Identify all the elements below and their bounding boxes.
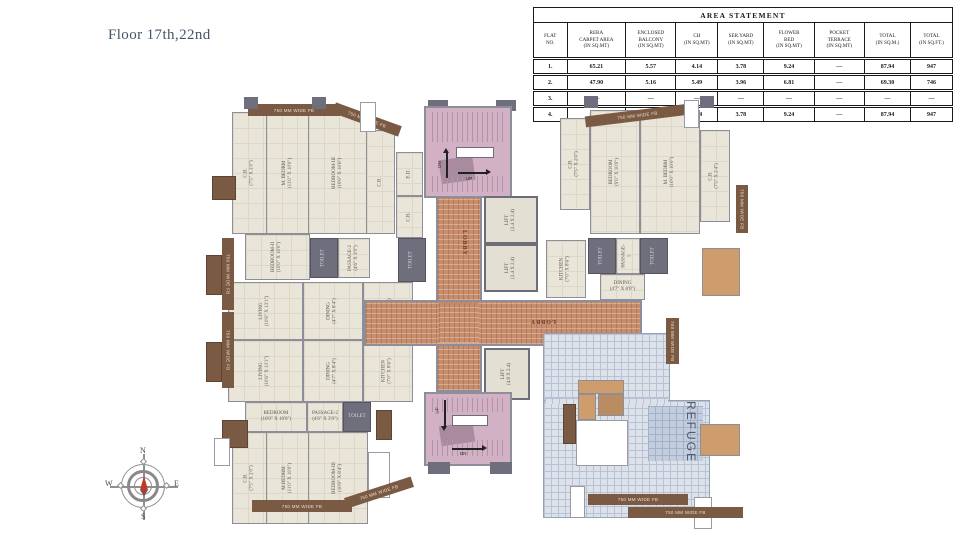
room-toilet: TOILET [398, 238, 426, 282]
room-bedroom-2: BEDROOM-II (10'0" X 10'0") [245, 234, 310, 280]
table-row: 1. 65.21 5.57 4.14 3.78 9.24 — 87.94 947 [534, 59, 953, 75]
room-living: LIVING (10'6" X 13'1") [228, 340, 303, 402]
col-total-sqft: TOTAL (IN SQ.FT.) [911, 23, 953, 59]
kitchen-counter-block [598, 394, 624, 416]
lobby-label-vertical: LOBBY [461, 230, 467, 256]
room-passage: PASSAGE-2 (4'6" X 3'9") [307, 402, 343, 432]
compass-needle-north [140, 476, 148, 490]
stair-up-label: UP [466, 176, 472, 181]
room-lift: LIFT (2.4 X 2.4) [484, 196, 538, 244]
lobby-junction [439, 303, 479, 343]
room-bedroom: BEDROOM (10'0" X 10'0") [245, 402, 307, 432]
stair-arrow-head [443, 148, 449, 153]
compass-label-n: N [140, 446, 146, 455]
room-toilet: TOILET [640, 238, 668, 274]
room-kitchen: KITCHEN (7'0" X 8'6") [363, 340, 413, 402]
column-tab [244, 97, 258, 109]
balcony-box [214, 438, 230, 466]
balcony-box [360, 102, 376, 132]
table-row: 2. 47.90 5.16 5.49 3.96 6.81 — 69.30 746 [534, 75, 953, 91]
stair-arrow-head [441, 426, 447, 431]
compass: N E S W [108, 450, 180, 524]
lobby-spine [436, 196, 482, 392]
flower-bed-band: 750 MM WIDE FB [248, 104, 340, 116]
flower-bed-block [206, 255, 222, 295]
room-living: LIVING (10'6" X 13'1") [228, 282, 303, 340]
room-cb: C.B. [366, 130, 395, 234]
room-dining: DINING (4'7" X 8'0") [600, 274, 645, 300]
stair-arrow [444, 400, 446, 426]
stair-arrow [446, 152, 448, 178]
flower-bed-band: 750 MM WIDE FB [222, 238, 234, 310]
flower-bed-band: 750 MM WIDE FB [666, 318, 679, 364]
flower-bed-band: 750 MM WIDE FB [628, 507, 743, 518]
room-cb: C.B. (7'5" X 2'0") [232, 112, 268, 234]
stair-arrow-head [482, 445, 487, 451]
col-ch: CH (IN SQ.MT) [676, 23, 718, 59]
room-master-bedroom: M. BEDRM (11'0" X 10'0") [266, 112, 310, 234]
floor-plan-sheet: Floor 17th,22nd AREA STATEMENT FLAT NO. … [0, 0, 957, 533]
room-kitchen: KITCHEN (7'0" X 8'6") [546, 240, 586, 298]
flower-bed-band: 750 MM WIDE FB [588, 494, 688, 505]
stair-arrow [458, 172, 486, 174]
compass-label-e: E [174, 479, 179, 488]
col-ser-yard: SER.YARD (IN SQ.MT) [718, 23, 764, 59]
room-bedroom-3: BEDROOM-III (10'0" X 10'6") [308, 112, 368, 234]
room-lift: LIFT (2.4 X 2.4) [484, 244, 538, 292]
flower-bed-block [212, 176, 236, 200]
stair-up-label: UP [435, 407, 440, 413]
column-tab [428, 462, 450, 474]
stair-treads [432, 112, 504, 142]
balcony-block [700, 424, 740, 456]
stair-landing [452, 415, 488, 426]
room-cb: C.B. [396, 196, 423, 238]
room-toilet: TOILET [310, 238, 338, 278]
stair-arrow [452, 448, 482, 450]
col-total-sqm: TOTAL (IN SQ.M.) [864, 23, 910, 59]
room-dining: DINING (4'7" X 8'4") [303, 340, 363, 402]
room-passage: PASSAGE-1 [616, 238, 640, 274]
stair-landing [456, 147, 494, 158]
col-pocket-terrace: POCKET TERRACE (IN SQ.MT) [814, 23, 864, 59]
room-toilet: TOILET [343, 402, 371, 432]
stair-dn-label: DN [460, 451, 467, 456]
balcony-box [684, 100, 699, 128]
flower-bed-block [206, 342, 222, 382]
col-flat-no: FLAT NO. [534, 23, 568, 59]
utility-box [576, 420, 628, 466]
dry-balcony-box [570, 486, 585, 518]
refuge-label: REFUGE [684, 401, 698, 463]
flower-bed-block [563, 404, 576, 444]
col-enclosed-balcony: ENCLOSED BALCONY (IN SQ.MT) [626, 23, 676, 59]
room-cb: C.B. (7'5" X 2'4") [700, 130, 730, 222]
room-ed: E.D. [396, 152, 423, 196]
kitchen-counter-block [578, 394, 596, 420]
stair-dn-label: DN [437, 161, 442, 168]
room-master-bedroom: M. BEDRM (10'0" X 10'0") [640, 110, 700, 234]
column-tab [584, 96, 598, 108]
compass-label-s: S [141, 512, 145, 521]
flower-bed-band: 750 MM WIDE FB [252, 500, 352, 512]
room-bedroom: BEDROOM (9'0" X 10'0") [590, 110, 640, 234]
room-passage: PASSAGE-2 (4'6" X 3'9") [338, 238, 370, 278]
room-toilet: TOILET [588, 238, 616, 274]
balcony-block [702, 248, 740, 296]
room-cb: C.B. (7'5" X 2'0") [560, 118, 590, 210]
stair-arrow-head [486, 169, 491, 175]
page-title: Floor 17th,22nd [108, 27, 211, 44]
flower-bed-block [376, 410, 392, 440]
compass-label-w: W [105, 479, 113, 488]
col-rera-carpet: RERA CARPET AREA (IN SQ.MT) [567, 23, 626, 59]
col-flower-bed: FLOWER BED (IN SQ.MT) [764, 23, 814, 59]
lobby-label-horizontal: LOBBY [530, 318, 556, 324]
kitchen-counter-block [578, 380, 624, 394]
compass-needle-south [140, 490, 148, 496]
room-dining: DINING (4'7" X 8'4") [303, 282, 363, 340]
column-tab [312, 97, 326, 109]
flower-bed-band: 750 MM WIDE FB [222, 312, 234, 388]
column-tab [490, 462, 512, 474]
table-title: AREA STATEMENT [534, 8, 953, 23]
flower-bed-band: 750 MM WIDE FB [736, 185, 748, 233]
stair-treads [432, 398, 504, 412]
column-tab [700, 96, 714, 108]
